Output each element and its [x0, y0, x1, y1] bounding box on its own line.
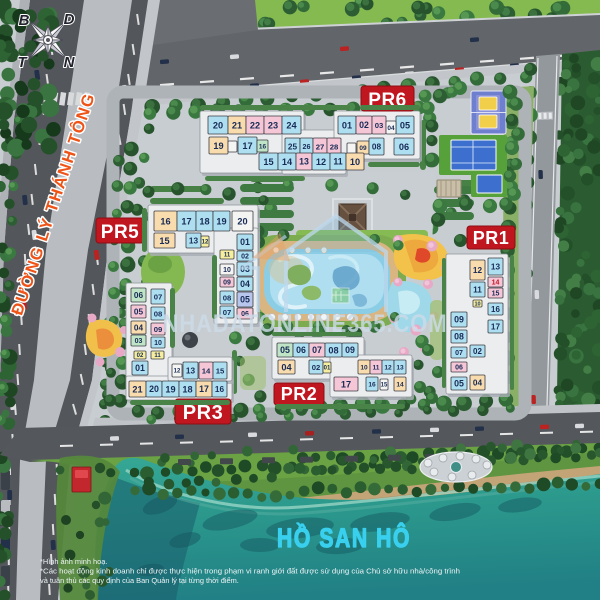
- svg-text:08: 08: [223, 293, 232, 302]
- svg-text:PR3: PR3: [183, 402, 223, 424]
- svg-text:01: 01: [135, 363, 145, 373]
- svg-text:12: 12: [174, 369, 181, 375]
- svg-text:20: 20: [149, 384, 159, 394]
- svg-text:04: 04: [387, 125, 395, 132]
- svg-text:05: 05: [454, 379, 464, 389]
- svg-text:N: N: [64, 54, 76, 71]
- svg-text:09: 09: [154, 325, 163, 334]
- svg-text:04: 04: [473, 379, 483, 388]
- svg-text:08: 08: [328, 345, 338, 355]
- svg-text:07: 07: [312, 345, 322, 355]
- svg-text:B: B: [19, 12, 30, 29]
- svg-text:19: 19: [216, 216, 226, 226]
- svg-text:PR2: PR2: [281, 384, 318, 404]
- svg-text:02: 02: [241, 254, 249, 261]
- svg-text:15: 15: [492, 291, 500, 298]
- svg-text:07: 07: [154, 292, 163, 301]
- svg-text:07: 07: [455, 350, 463, 357]
- svg-text:16: 16: [215, 385, 225, 394]
- svg-text:17: 17: [199, 384, 209, 394]
- svg-text:05: 05: [240, 295, 250, 305]
- svg-text:05: 05: [280, 345, 290, 355]
- svg-text:10: 10: [350, 157, 360, 167]
- svg-text:11: 11: [154, 353, 161, 359]
- svg-text:20: 20: [213, 120, 223, 130]
- svg-text:02: 02: [137, 353, 144, 359]
- svg-text:02: 02: [473, 347, 482, 356]
- svg-text:03: 03: [135, 338, 143, 345]
- svg-text:04: 04: [134, 324, 144, 333]
- svg-text:NHADATONLINE365.COM: NHADATONLINE365.COM: [163, 310, 448, 338]
- svg-text:12: 12: [384, 364, 392, 371]
- svg-text:15: 15: [159, 236, 169, 246]
- svg-text:*Các hoạt động kinh doanh chỉ: *Các hoạt động kinh doanh chỉ được thực …: [40, 567, 460, 576]
- svg-text:14: 14: [202, 366, 211, 375]
- svg-text:10: 10: [154, 340, 162, 347]
- svg-text:16: 16: [368, 381, 376, 388]
- svg-text:09: 09: [345, 345, 355, 355]
- svg-text:10: 10: [474, 302, 480, 308]
- svg-text:28: 28: [330, 142, 339, 151]
- svg-text:06: 06: [399, 142, 409, 152]
- svg-text:22: 22: [250, 120, 260, 130]
- svg-text:23: 23: [268, 120, 278, 130]
- svg-text:17: 17: [181, 216, 191, 226]
- svg-text:14: 14: [282, 157, 293, 167]
- svg-text:17: 17: [341, 379, 351, 389]
- svg-text:14: 14: [396, 381, 404, 388]
- svg-text:13: 13: [491, 263, 501, 272]
- svg-text:11: 11: [333, 157, 342, 167]
- svg-text:15: 15: [216, 366, 225, 375]
- svg-text:19: 19: [165, 384, 175, 394]
- svg-text:06: 06: [296, 345, 306, 355]
- svg-text:26: 26: [303, 143, 311, 151]
- svg-text:14: 14: [492, 280, 500, 287]
- svg-text:PR5: PR5: [101, 222, 139, 243]
- svg-text:16: 16: [160, 216, 170, 226]
- svg-text:13: 13: [189, 237, 199, 246]
- svg-text:05: 05: [400, 120, 410, 130]
- svg-text:D: D: [64, 11, 75, 28]
- svg-text:02: 02: [359, 120, 369, 130]
- svg-text:12: 12: [202, 240, 209, 246]
- svg-text:09: 09: [359, 145, 367, 152]
- svg-text:12: 12: [316, 157, 326, 167]
- svg-text:18: 18: [182, 384, 192, 394]
- svg-text:10: 10: [223, 267, 231, 274]
- svg-text:21: 21: [132, 384, 142, 394]
- svg-text:13: 13: [396, 364, 404, 371]
- svg-text:và tuân thủ các quy định của B: và tuân thủ các quy định của Ban Quản lý…: [40, 576, 239, 585]
- svg-text:27: 27: [316, 142, 325, 151]
- svg-text:18: 18: [199, 216, 209, 226]
- svg-text:24: 24: [286, 120, 297, 130]
- svg-text:12: 12: [473, 266, 483, 275]
- svg-text:04: 04: [281, 362, 292, 372]
- svg-text:11: 11: [373, 364, 380, 371]
- svg-text:06: 06: [455, 365, 463, 372]
- svg-text:03: 03: [375, 121, 384, 130]
- svg-text:09: 09: [223, 280, 231, 287]
- svg-text:21: 21: [232, 120, 242, 130]
- svg-text:13: 13: [186, 367, 196, 376]
- svg-text:01: 01: [240, 237, 250, 247]
- svg-text:02: 02: [312, 363, 321, 372]
- svg-text:19: 19: [213, 141, 223, 151]
- svg-text:15: 15: [263, 157, 273, 167]
- svg-text:*Hình ảnh minh hoạ.: *Hình ảnh minh hoạ.: [40, 557, 107, 566]
- svg-text:01: 01: [324, 366, 331, 372]
- svg-text:20: 20: [237, 216, 247, 226]
- svg-text:HỒ SAN HÔ: HỒ SAN HÔ: [277, 522, 411, 553]
- svg-text:16: 16: [491, 305, 500, 314]
- svg-text:25: 25: [288, 143, 298, 152]
- svg-text:13: 13: [299, 157, 309, 167]
- svg-text:16: 16: [259, 143, 267, 150]
- svg-text:09: 09: [454, 315, 464, 325]
- svg-text:05: 05: [134, 308, 144, 317]
- svg-text:17: 17: [491, 323, 501, 332]
- svg-text:08: 08: [454, 332, 464, 342]
- svg-text:06: 06: [134, 291, 144, 300]
- svg-text:11: 11: [224, 253, 231, 259]
- svg-text:10: 10: [360, 364, 368, 371]
- svg-text:04: 04: [240, 279, 250, 289]
- svg-text:15: 15: [381, 383, 388, 389]
- svg-text:17: 17: [242, 141, 252, 151]
- svg-text:08: 08: [372, 143, 382, 152]
- svg-text:11: 11: [473, 286, 482, 295]
- svg-text:PR1: PR1: [473, 228, 510, 248]
- svg-text:01: 01: [342, 120, 352, 130]
